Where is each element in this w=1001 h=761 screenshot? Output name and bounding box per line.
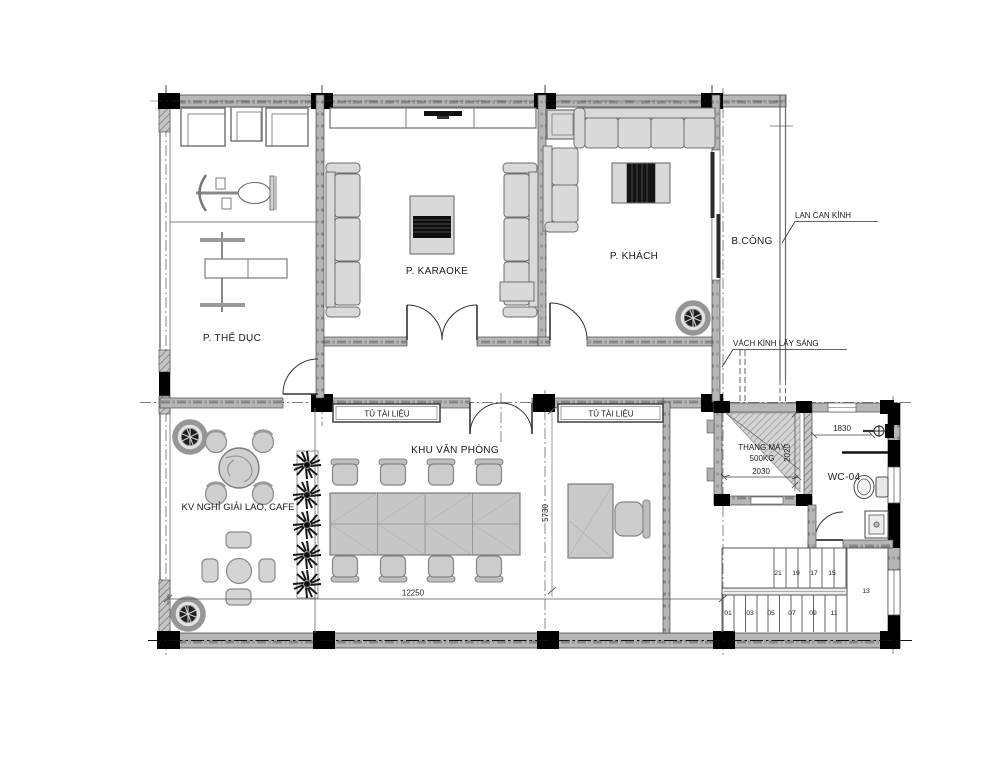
left-wall: [159, 95, 170, 648]
fan-icon: [173, 599, 203, 629]
room-label-gym: P. THỂ DỤC: [203, 331, 261, 344]
grid-ticks: [166, 85, 712, 96]
room-label-balcony: B.CÔNG: [731, 234, 772, 247]
room-label-wc: WC-04: [828, 472, 861, 483]
cafe-area: [173, 422, 321, 629]
right-wall: [888, 403, 900, 648]
dim-elevator-depth: 2020: [783, 444, 792, 462]
fan-icon: [678, 303, 708, 333]
stair-step-label: 21: [774, 570, 782, 577]
plant-icon: [293, 451, 321, 479]
meeting-table: [330, 459, 520, 582]
elevator-capacity-label: 500KG: [750, 454, 775, 463]
door-gym: [283, 359, 318, 394]
dim-office-depth: 5730: [541, 504, 550, 522]
floorplan-canvas: P. THỂ DỤC P. KARAOKE P. KHÁCH B.CÔNG KH…: [0, 0, 1001, 761]
cabinet-left-label: TỦ TÀI LIỆU: [364, 410, 409, 419]
tv-console-living: [612, 163, 670, 203]
plant-icon: [293, 511, 321, 539]
door-living: [550, 303, 587, 340]
stair-step-label: 05: [767, 610, 775, 617]
glass-railing-label: LAN CAN KÍNH: [795, 211, 851, 220]
stair-step-label: 01: [724, 610, 732, 617]
elevator-door: [751, 497, 783, 504]
glass-partition-label: VÁCH KÍNH LẤY SÁNG: [733, 338, 819, 348]
stair-landing-label: 13: [862, 588, 870, 595]
cabinet-right-label: TỦ TÀI LIỆU: [588, 410, 633, 419]
bench-press: [200, 232, 287, 312]
cafe-round-table: [206, 431, 274, 505]
elevator-name-label: THANG MÁY: [738, 443, 786, 452]
dim-wc-width: 1830: [833, 424, 851, 433]
living-sofa-top: [574, 108, 715, 148]
desk: [568, 484, 650, 558]
stair-step-label: 19: [792, 570, 800, 577]
room-label-cafe: KV NGHỈ GIẢI LAO, CAFE: [182, 501, 295, 513]
room-label-karaoke: P. KARAOKE: [406, 266, 468, 277]
washbasin-icon: [865, 511, 888, 538]
door-karaoke-double: [407, 305, 477, 340]
stair-step-label: 07: [788, 610, 796, 617]
karaoke-side-table: [500, 282, 534, 301]
planter-row: [293, 451, 321, 598]
glass-railing: [770, 95, 793, 402]
gym-furniture: [170, 107, 316, 312]
stairs-lower-flight: [723, 595, 847, 632]
plant-icon: [293, 481, 321, 509]
exercise-machine: [196, 175, 276, 211]
dim-elevator-width: 2030: [752, 467, 770, 476]
stair-step-label: 09: [809, 610, 817, 617]
plant-icon: [293, 570, 321, 598]
living-furniture: [543, 108, 715, 333]
karaoke-furniture: [326, 108, 538, 317]
glass-partition: [740, 350, 745, 401]
dim-total-width: 12250: [402, 589, 425, 598]
plant-icon: [293, 541, 321, 569]
fan-icon: [175, 422, 205, 452]
stair-step-label: 17: [810, 570, 818, 577]
faucet-icon: [863, 424, 894, 438]
office-furniture: [330, 404, 663, 582]
cafe-small-table: [202, 532, 275, 605]
stair-step-label: 03: [746, 610, 754, 617]
karaoke-table: [410, 196, 454, 254]
room-label-living: P. KHÁCH: [610, 249, 658, 262]
stair-step-label: 15: [828, 570, 836, 577]
stairs-upper-flight: [774, 548, 846, 588]
room-label-office: KHU VĂN PHÒNG: [411, 443, 499, 456]
living-sofa-left: [543, 146, 578, 232]
stair-step-label: 11: [830, 610, 837, 617]
door-wc: [815, 512, 843, 540]
karaoke-sofa-left: [326, 163, 360, 317]
